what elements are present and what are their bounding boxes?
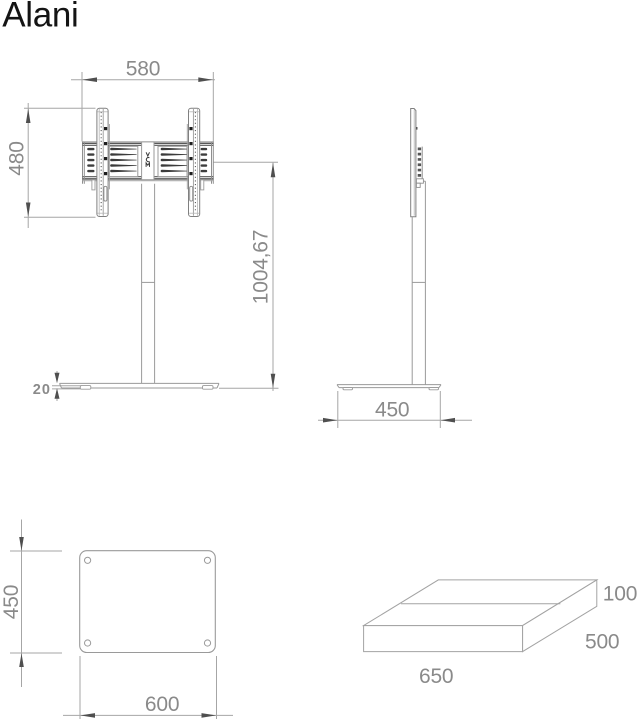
svg-text:1004,67: 1004,67 [250, 230, 273, 305]
svg-text:600: 600 [145, 693, 179, 716]
svg-text:580: 580 [126, 58, 160, 81]
svg-text:480: 480 [5, 141, 28, 175]
svg-text:450: 450 [0, 585, 23, 619]
svg-text:100: 100 [603, 582, 637, 605]
svg-text:650: 650 [419, 665, 453, 688]
svg-text:Alani: Alani [2, 0, 78, 34]
svg-text:500: 500 [585, 630, 619, 653]
svg-text:20: 20 [33, 382, 51, 398]
svg-text:450: 450 [375, 398, 409, 421]
